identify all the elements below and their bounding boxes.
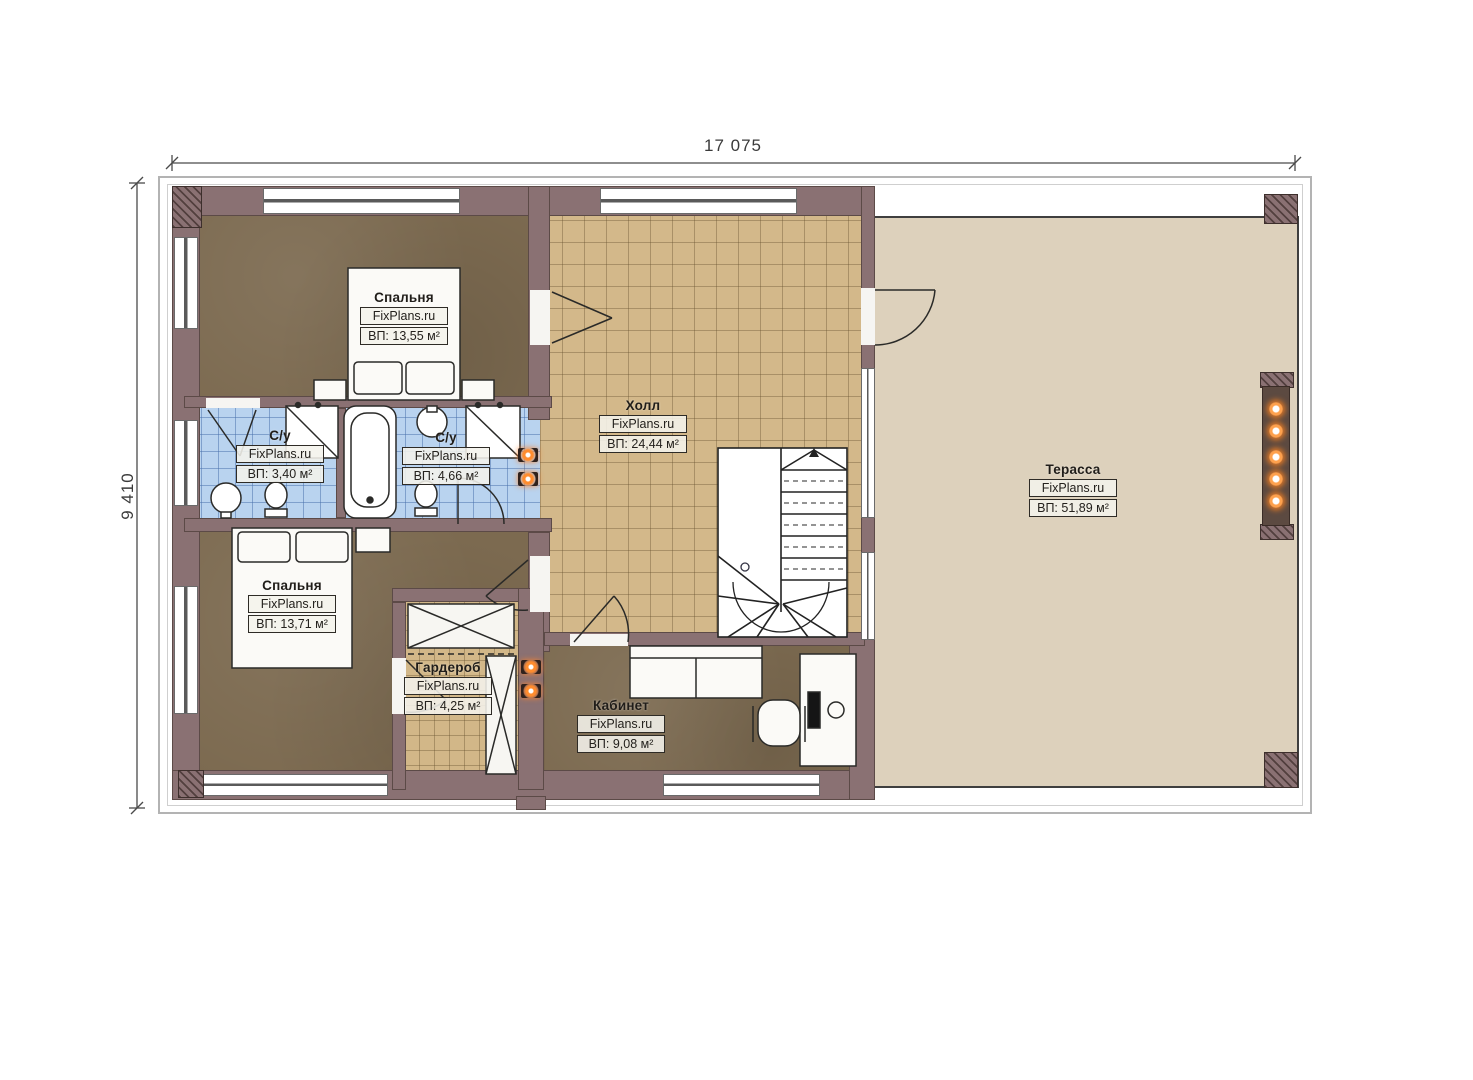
wall-lamp-icon xyxy=(521,684,541,698)
light-icon xyxy=(1269,472,1283,486)
window xyxy=(174,420,198,506)
dimension-width-label: 17 075 xyxy=(704,136,762,156)
light-icon xyxy=(1269,402,1283,416)
hall-floor xyxy=(540,198,875,650)
window xyxy=(174,586,198,714)
room-area: ВП: 3,40 м² xyxy=(236,465,324,483)
room-area: ВП: 13,71 м² xyxy=(248,615,336,633)
brand-tag: FixPlans.ru xyxy=(1029,479,1117,497)
room-label-bedroom-1: Спальня FixPlans.ru ВП: 13,55 м² xyxy=(360,290,448,345)
window xyxy=(263,188,460,214)
light-icon xyxy=(1269,424,1283,438)
wall-chimney xyxy=(516,796,546,810)
brand-tag: FixPlans.ru xyxy=(236,445,324,463)
room-area: ВП: 9,08 м² xyxy=(577,735,665,753)
door-opening xyxy=(530,556,550,612)
room-area: ВП: 24,44 м² xyxy=(599,435,687,453)
pier-terrace-right-lower xyxy=(1260,524,1294,540)
wall-lamp-icon xyxy=(518,472,538,486)
room-label-office: Кабинет FixPlans.ru ВП: 9,08 м² xyxy=(577,698,665,753)
window xyxy=(861,368,875,518)
room-name: Кабинет xyxy=(577,698,665,713)
window xyxy=(663,774,820,796)
pier-top-left xyxy=(172,186,202,228)
door-opening xyxy=(530,290,550,345)
room-name: С/у xyxy=(402,430,490,445)
brand-tag: FixPlans.ru xyxy=(402,447,490,465)
wall-office-right xyxy=(849,638,875,800)
room-label-bedroom-2: Спальня FixPlans.ru ВП: 13,71 м² xyxy=(248,578,336,633)
door-opening xyxy=(570,634,628,646)
window xyxy=(861,552,875,640)
room-area: ВП: 51,89 м² xyxy=(1029,499,1117,517)
dimension-height-label: 9 410 xyxy=(118,461,138,531)
room-area: ВП: 13,55 м² xyxy=(360,327,448,345)
brand-tag: FixPlans.ru xyxy=(404,677,492,695)
room-label-hall: Холл FixPlans.ru ВП: 24,44 м² xyxy=(599,398,687,453)
pier-terrace-top-right xyxy=(1264,194,1298,224)
wall-lamp-icon xyxy=(518,448,538,462)
room-name: Гардероб xyxy=(404,660,492,675)
room-label-bathroom-1: С/у FixPlans.ru ВП: 3,40 м² xyxy=(236,428,324,483)
room-label-bathroom-2: С/у FixPlans.ru ВП: 4,66 м² xyxy=(402,430,490,485)
room-name: С/у xyxy=(236,428,324,443)
light-icon xyxy=(1269,450,1283,464)
wall-lamp-icon xyxy=(521,660,541,674)
room-label-wardrobe: Гардероб FixPlans.ru ВП: 4,25 м² xyxy=(404,660,492,715)
window xyxy=(186,774,388,796)
brand-tag: FixPlans.ru xyxy=(248,595,336,613)
room-area: ВП: 4,66 м² xyxy=(402,467,490,485)
wall-bath-divider xyxy=(336,408,346,518)
brand-tag: FixPlans.ru xyxy=(577,715,665,733)
floor-plan: 17 075 9 410 xyxy=(0,0,1473,1080)
room-area: ВП: 4,25 м² xyxy=(404,697,492,715)
brand-tag: FixPlans.ru xyxy=(360,307,448,325)
room-name: Терасса xyxy=(1029,462,1117,477)
door-opening xyxy=(206,398,260,408)
wall-bath-bottom xyxy=(184,518,552,532)
window xyxy=(600,188,797,214)
door-opening xyxy=(861,288,875,345)
pier-bottom-left xyxy=(178,770,204,798)
brand-tag: FixPlans.ru xyxy=(599,415,687,433)
room-label-terrace: Терасса FixPlans.ru ВП: 51,89 м² xyxy=(1029,462,1117,517)
room-name: Спальня xyxy=(248,578,336,593)
window xyxy=(174,237,198,329)
light-icon xyxy=(1269,494,1283,508)
room-name: Спальня xyxy=(360,290,448,305)
room-name: Холл xyxy=(599,398,687,413)
pier-terrace-bottom-right xyxy=(1264,752,1298,788)
